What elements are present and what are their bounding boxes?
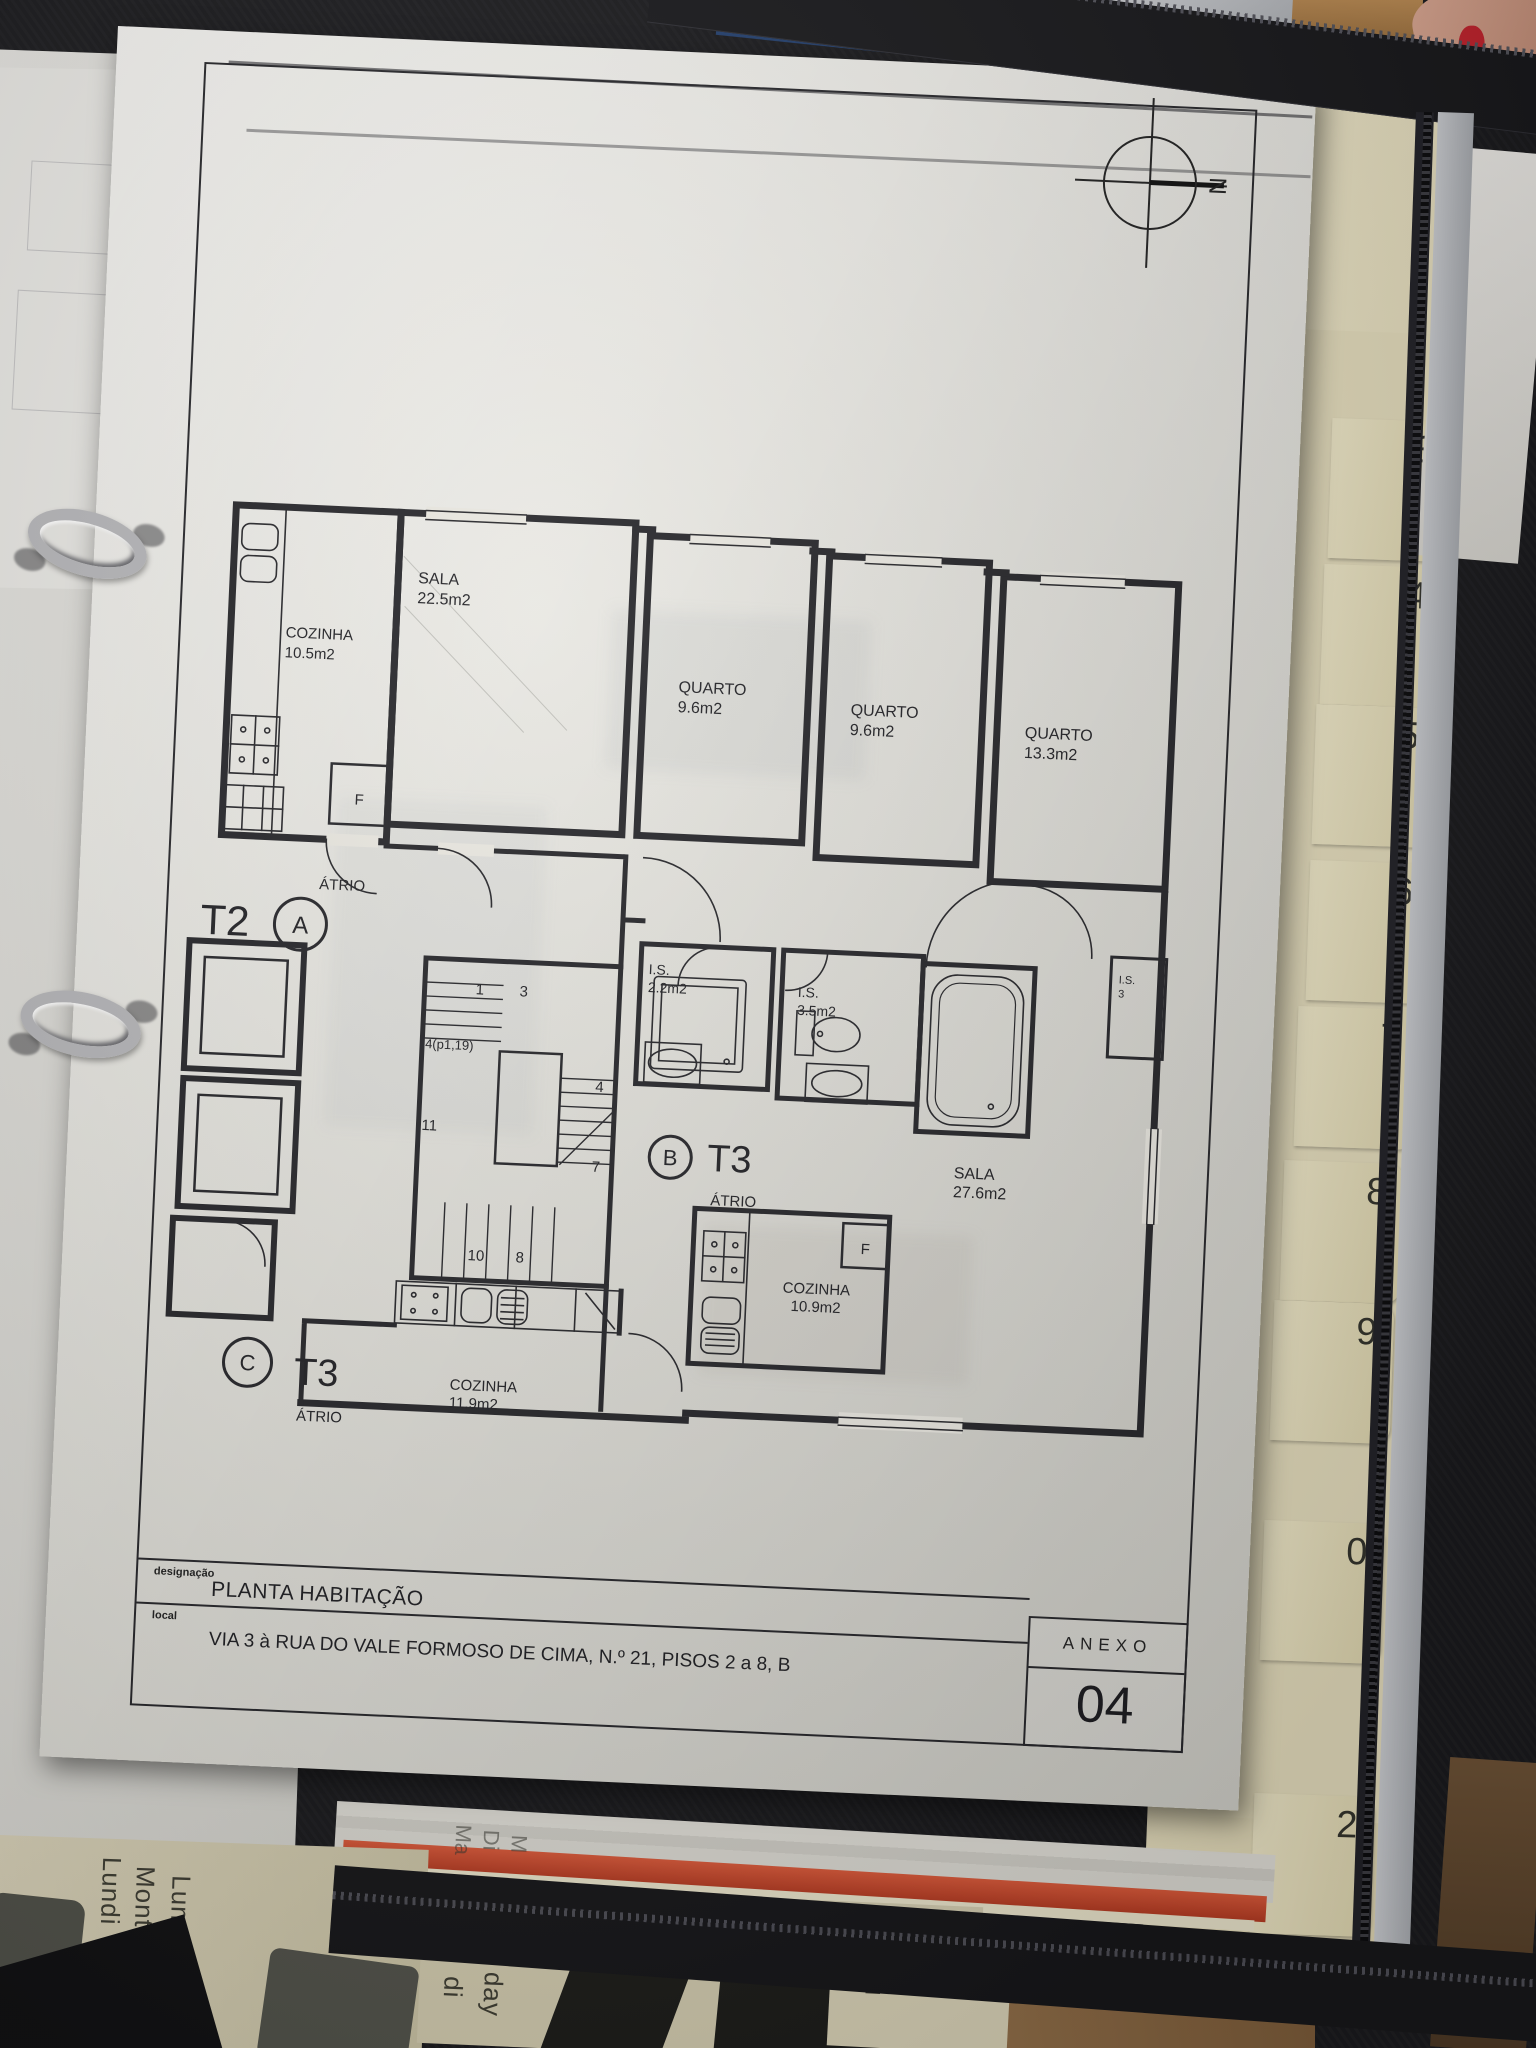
room-area: 10.5m2 (284, 644, 335, 663)
atrio-label: ÁTRIO (710, 1192, 757, 1211)
plan-sheet[interactable]: designação PLANTA HABITAÇÃO local VIA 3 … (39, 26, 1316, 1811)
room-area: 2.2m2 (648, 979, 688, 997)
room-label: COZINHA (285, 624, 353, 644)
elevator-shafts (169, 940, 305, 1319)
compass-north-label: N (1202, 177, 1231, 196)
room-area: 22.5m2 (417, 590, 471, 609)
weekday-text: day (474, 1971, 508, 2048)
unit-type-t2: T2 (200, 896, 251, 945)
room-area: 9.6m2 (849, 722, 894, 741)
room-label: SALA (418, 570, 460, 589)
ring-metal (20, 496, 155, 591)
anexo-label: ANEXO (1029, 1632, 1186, 1659)
room-label: COZINHA (449, 1376, 517, 1396)
room-label: I.S. (798, 984, 820, 1001)
floor-plan: SALA 22.5m2 QUARTO 9.6m2 QUARTO 9.6m2 QU… (149, 485, 1191, 1479)
room-area: 3.5m2 (797, 1002, 837, 1020)
room-label: SALA (953, 1165, 995, 1184)
stair-number: 11 (421, 1117, 437, 1135)
room-area: 11.9m2 (448, 1394, 498, 1413)
anexo-number: 04 (1026, 1672, 1185, 1739)
atrio-label: ÁTRIO (296, 1408, 343, 1427)
appliance-f: F (860, 1241, 870, 1258)
appliance-f: F (354, 792, 364, 809)
unit-letter-b: B (662, 1145, 678, 1171)
atrio-label: ÁTRIO (319, 876, 366, 895)
weekday-text: di (435, 1976, 469, 2047)
room-label: I.S. (648, 961, 670, 978)
room-label: QUARTO (850, 702, 919, 722)
room-area: 3 (1118, 988, 1125, 1000)
room-area: 9.6m2 (677, 699, 722, 718)
photo-scene: 3 4 5 6 7 8 9 0 2 designação PLANTA HABI… (0, 0, 1536, 2048)
unit-type-t3b: T3 (706, 1138, 752, 1182)
stair-number: 3 (519, 983, 528, 1000)
room-labels: SALA 22.5m2 QUARTO 9.6m2 QUARTO 9.6m2 QU… (251, 564, 1153, 1441)
room-area: 10.9m2 (790, 1298, 841, 1317)
unit-letter-c: C (239, 1350, 256, 1376)
stair-number: 4(p1,19) (425, 1036, 474, 1053)
room-label: COZINHA (782, 1279, 850, 1299)
site-address: VIA 3 à RUA DO VALE FORMOSO DE CIMA, N.º… (208, 1629, 790, 1677)
local-label: local (152, 1609, 178, 1622)
windows (301, 503, 1189, 1443)
room-area: 27.6m2 (953, 1184, 1007, 1203)
room-label: QUARTO (678, 679, 747, 699)
unit-letter-a: A (292, 912, 309, 940)
room-label: QUARTO (1024, 725, 1093, 745)
unit-type-t3c: T3 (293, 1351, 339, 1395)
ring-metal (14, 980, 147, 1068)
stair-number: 8 (515, 1249, 524, 1266)
anexo-box: ANEXO 04 (1023, 1616, 1189, 1753)
cover-glyph (256, 1947, 420, 2048)
designacao-label: designação (154, 1565, 215, 1580)
stair-number: 1 (475, 981, 484, 998)
stair-steps (412, 982, 620, 1287)
unit-labels: T2 A ÁTRIO B T3 ÁTRIO C T3 ÁTRIO F F (178, 785, 890, 1450)
room-label: I.S. (1118, 974, 1135, 987)
stair-number: 4 (595, 1079, 604, 1096)
stair-number: 7 (591, 1159, 600, 1176)
room-area: 13.3m2 (1024, 745, 1078, 764)
stair-number: 10 (467, 1247, 484, 1265)
